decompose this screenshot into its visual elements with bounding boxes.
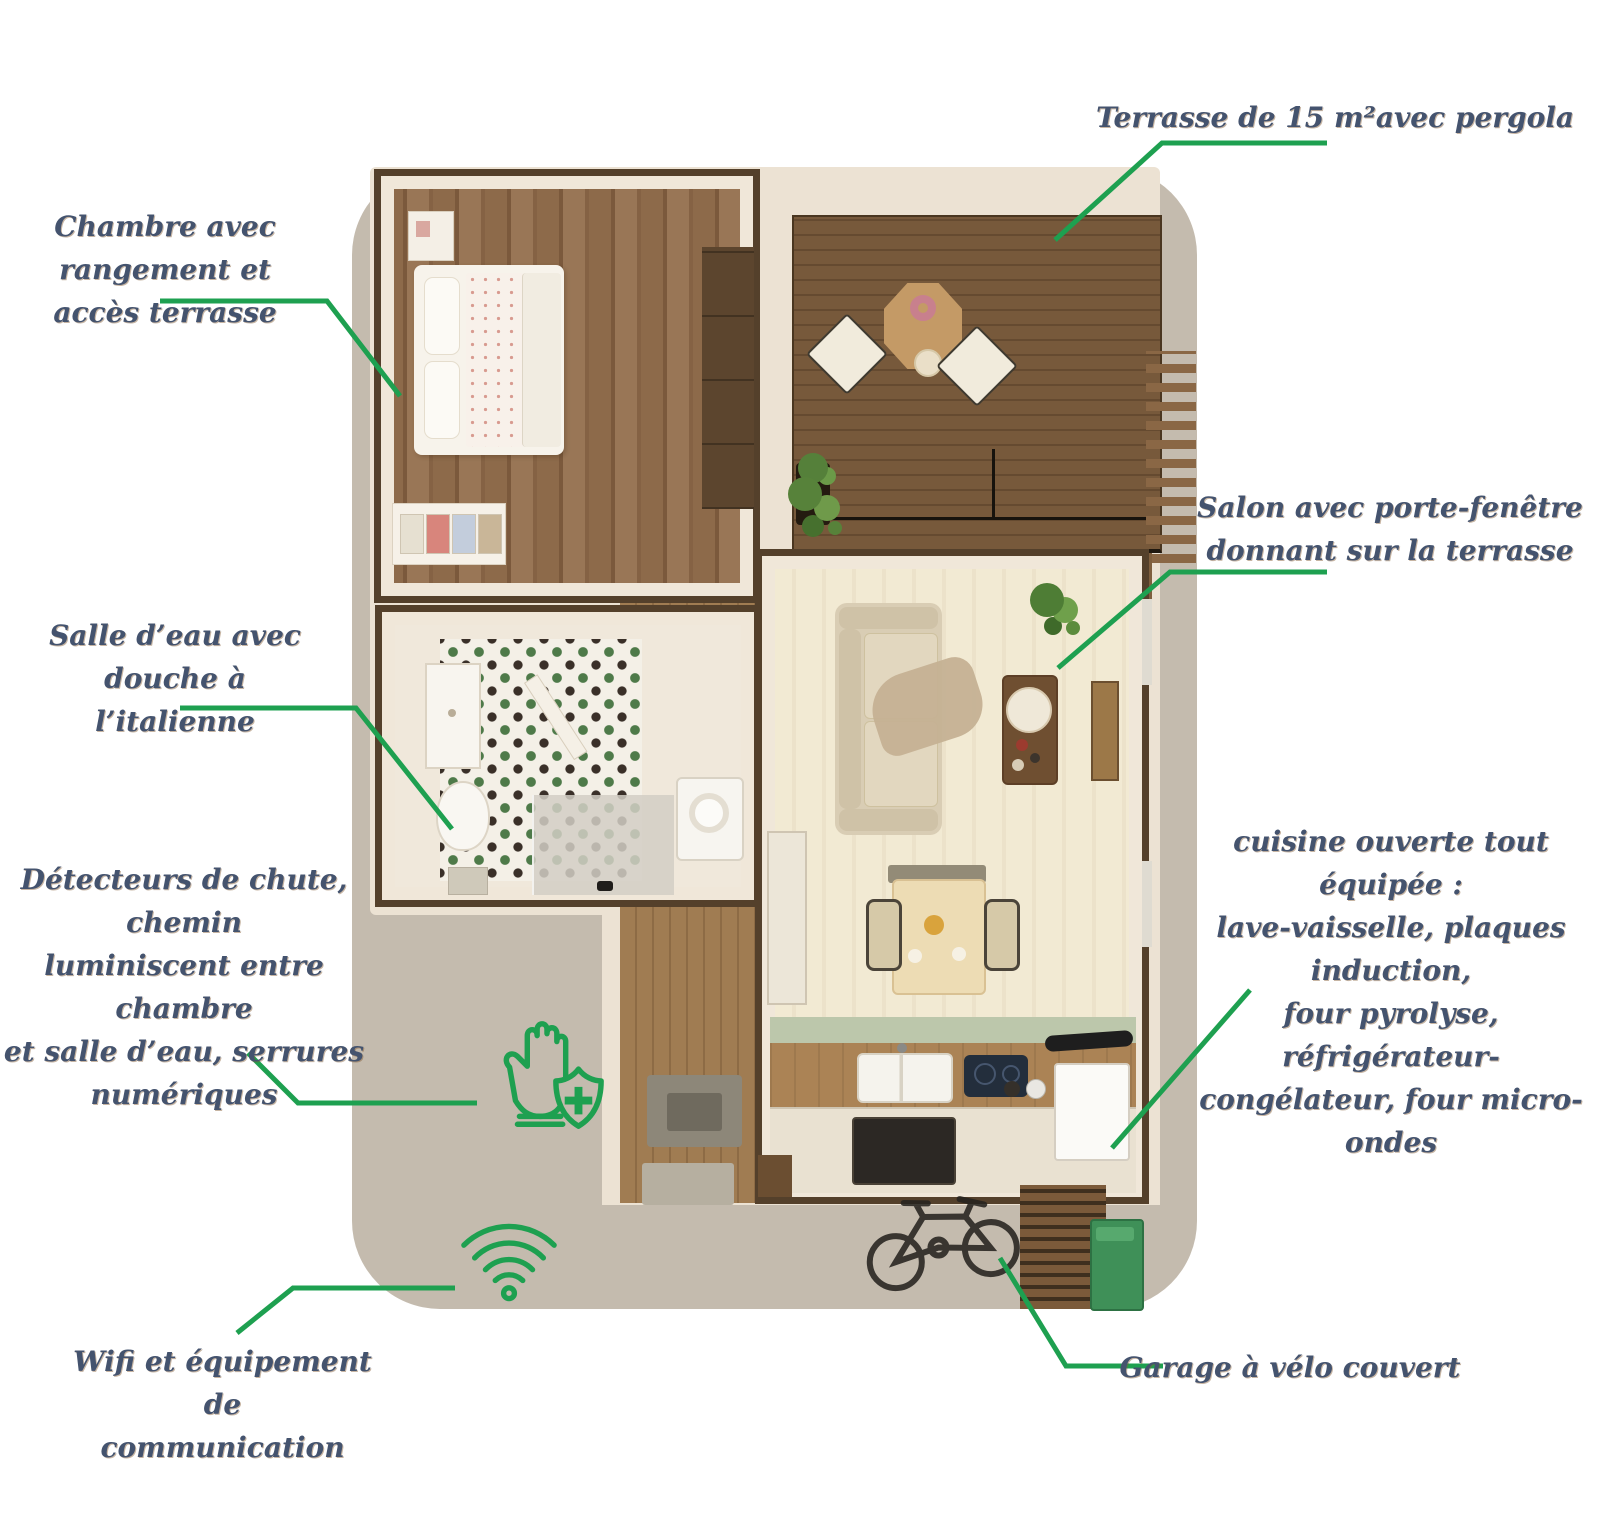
table-plate bbox=[908, 949, 922, 963]
tv-wall-panel bbox=[1091, 681, 1119, 781]
kitchen-faucet bbox=[897, 1043, 907, 1053]
bed-duvet bbox=[466, 273, 524, 447]
window bbox=[1142, 861, 1152, 947]
sofa-backrest bbox=[839, 629, 861, 809]
label-line: lave-vaisselle, plaques induction, bbox=[1182, 906, 1600, 992]
bike-handlebar bbox=[960, 1197, 986, 1217]
label-line: Salle d’eau avec douche à bbox=[8, 614, 342, 700]
bed-pillow bbox=[424, 361, 460, 439]
terrace-label: Terrasse de 15 m²avec pergola bbox=[1096, 96, 1574, 139]
hand-shield-icon bbox=[482, 1012, 610, 1144]
green-storage-box-lid bbox=[1096, 1227, 1134, 1241]
label-line: four pyrolyse, réfrigérateur- bbox=[1182, 992, 1600, 1078]
label-line: numériques bbox=[2, 1073, 366, 1116]
wifi-arc bbox=[475, 1243, 544, 1258]
bike-seat bbox=[904, 1200, 930, 1218]
label-line: Terrasse de 15 m²avec pergola bbox=[1096, 96, 1574, 139]
coffee-cup bbox=[1016, 739, 1028, 751]
label-line: congélateur, four micro-ondes bbox=[1182, 1078, 1600, 1164]
bicycle bbox=[851, 1160, 1035, 1305]
sofa-armrest bbox=[839, 607, 938, 629]
label-line: l’italienne bbox=[8, 700, 342, 743]
dining-table bbox=[892, 879, 986, 995]
walk-in-shower bbox=[532, 795, 674, 895]
bathroom-bin bbox=[448, 867, 488, 895]
entry-bench-top bbox=[667, 1093, 722, 1131]
label-line: communication bbox=[60, 1426, 385, 1469]
hob-ring bbox=[974, 1063, 996, 1085]
label-line: Détecteurs de chute, chemin bbox=[2, 858, 366, 944]
label-line: cuisine ouverte tout équipée : bbox=[1182, 820, 1600, 906]
wifi-arc bbox=[495, 1275, 522, 1281]
label-line: donnant sur la terrasse bbox=[1180, 529, 1600, 572]
bike-garage-label: Garage à vélo couvert bbox=[1120, 1346, 1461, 1389]
label-line: Salon avec porte-fenêtre bbox=[1180, 486, 1600, 529]
living-room-plant bbox=[1030, 583, 1064, 617]
label-line: Garage à vélo couvert bbox=[1120, 1346, 1461, 1389]
label-line: Chambre avec rangement et bbox=[0, 205, 330, 291]
pendant-lamp bbox=[924, 915, 944, 935]
table-plate bbox=[952, 947, 966, 961]
toilet bbox=[436, 781, 490, 851]
kitchen-label: cuisine ouverte tout équipée : lave-vais… bbox=[1182, 820, 1600, 1164]
bed-pillow bbox=[424, 277, 460, 355]
patio-door-plant bbox=[788, 477, 822, 511]
terrace-railing bbox=[992, 449, 995, 517]
floorplan-infographic: Terrasse de 15 m²avec pergola Chambre av… bbox=[0, 0, 1600, 1525]
wifi-label: Wifi et équipement de communication bbox=[60, 1340, 385, 1469]
label-line: luminiscent entre chambre bbox=[2, 944, 366, 1030]
nightstand bbox=[408, 211, 454, 261]
dresser-drawer bbox=[426, 514, 450, 554]
safety-features-label: Détecteurs de chute, chemin luminiscent … bbox=[2, 858, 366, 1116]
floorplan bbox=[352, 167, 1197, 1309]
glove-cuff bbox=[517, 1116, 562, 1124]
label-line: et salle d’eau, serrures bbox=[2, 1030, 366, 1073]
dresser-drawer bbox=[478, 514, 502, 554]
dining-chair bbox=[984, 899, 1020, 971]
fridge-freezer bbox=[1054, 1063, 1130, 1161]
coffee-cup bbox=[1012, 759, 1024, 771]
bathroom-label: Salle d’eau avec douche à l’italienne bbox=[8, 614, 342, 743]
entry-door bbox=[758, 1155, 792, 1197]
washing-machine-door bbox=[689, 793, 729, 833]
terrace-railing bbox=[804, 517, 1150, 520]
vanity-knob bbox=[448, 709, 456, 717]
door-mat bbox=[642, 1163, 734, 1205]
wifi-dot bbox=[504, 1288, 515, 1299]
shower-fixture bbox=[597, 881, 613, 891]
kitchen-side-counter bbox=[767, 831, 807, 1005]
sofa-armrest bbox=[839, 809, 938, 831]
bed-throw bbox=[522, 273, 561, 447]
wifi-icon bbox=[450, 1202, 568, 1308]
wifi-arc bbox=[485, 1260, 532, 1270]
small-appliance bbox=[1026, 1079, 1046, 1099]
small-appliance bbox=[1004, 1081, 1020, 1097]
kitchen-sink bbox=[857, 1053, 953, 1103]
label-line: accès terrasse bbox=[0, 291, 330, 334]
bedroom-wardrobe bbox=[702, 247, 754, 509]
floorplan-panel bbox=[352, 167, 1197, 1309]
coffee-cup bbox=[1030, 753, 1040, 763]
label-line: Wifi et équipement de bbox=[60, 1340, 385, 1426]
living-room-label: Salon avec porte-fenêtre donnant sur la … bbox=[1180, 486, 1600, 572]
dresser-drawer bbox=[452, 514, 476, 554]
dresser-drawer bbox=[400, 514, 424, 554]
dining-chair bbox=[866, 899, 902, 971]
window bbox=[1142, 599, 1152, 685]
nightstand-item bbox=[416, 221, 430, 237]
coffee-table-tray bbox=[1006, 687, 1052, 733]
bedroom-label: Chambre avec rangement et accès terrasse bbox=[0, 205, 330, 334]
table-wreath bbox=[910, 295, 936, 321]
